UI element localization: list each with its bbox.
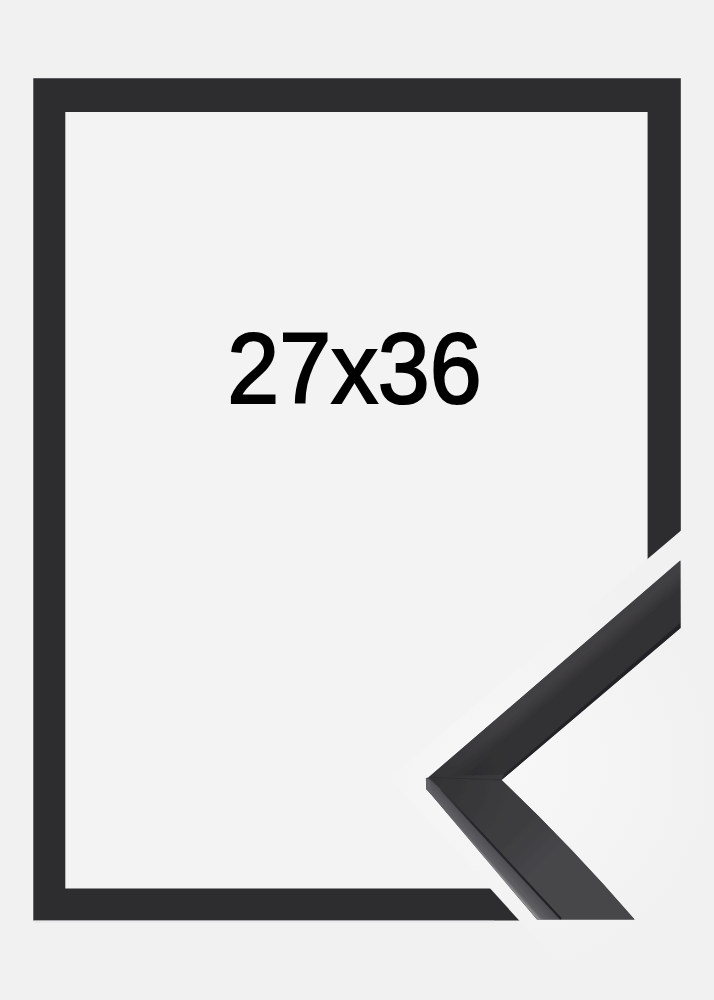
- svg-text:27x36: 27x36: [227, 312, 481, 425]
